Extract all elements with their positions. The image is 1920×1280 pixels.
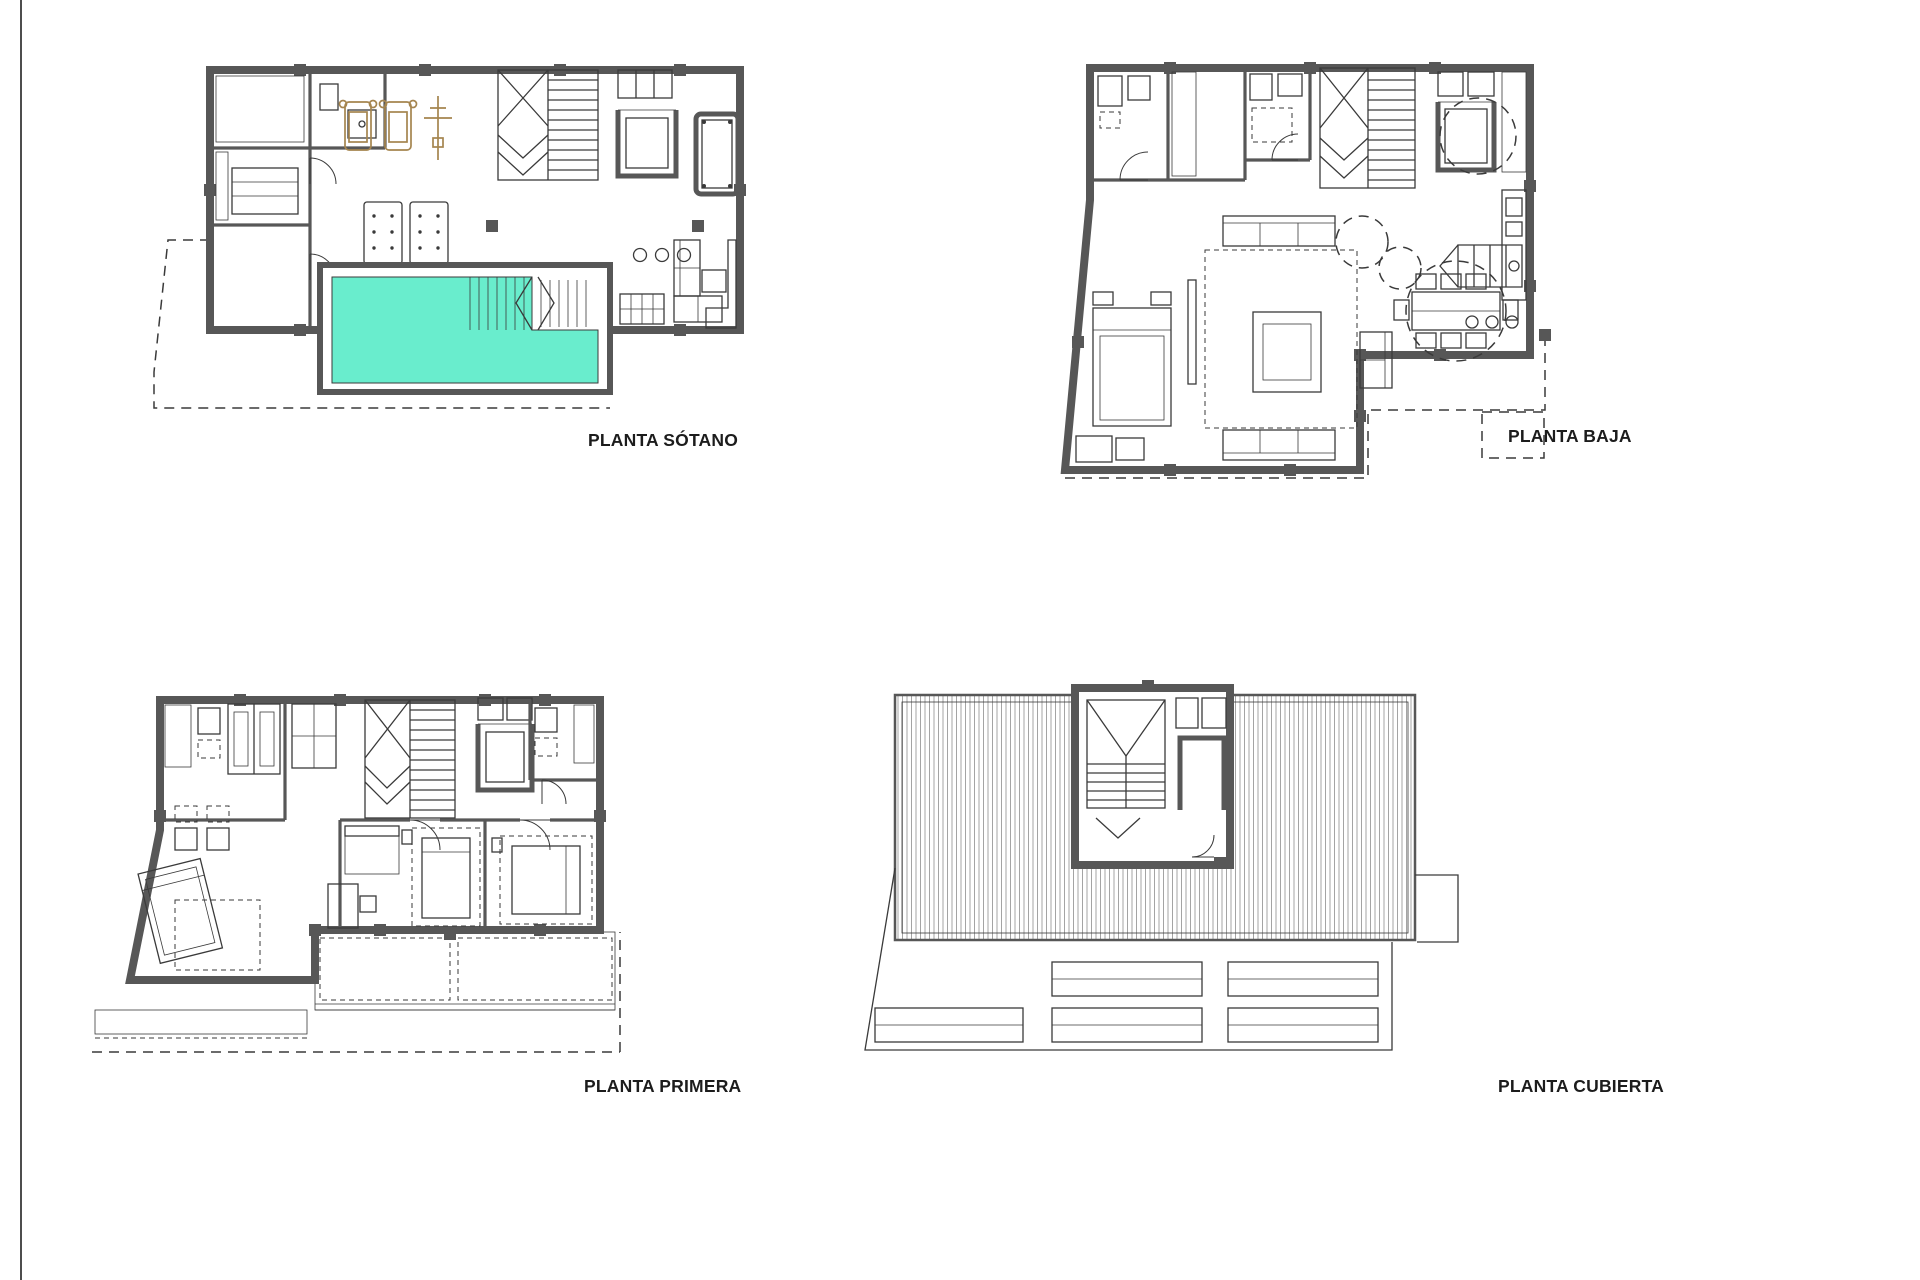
ground-floor-shell bbox=[1065, 62, 1536, 476]
stair-bulkhead bbox=[1075, 680, 1230, 869]
elevator bbox=[618, 110, 676, 176]
swimming-pool bbox=[320, 265, 610, 392]
bar-counter bbox=[634, 240, 737, 328]
closet bbox=[292, 704, 336, 768]
floor-plan-sotano bbox=[140, 40, 820, 470]
staircase bbox=[1320, 68, 1415, 188]
dining-set bbox=[1394, 261, 1518, 361]
bedroom-master bbox=[138, 859, 260, 970]
elevator bbox=[478, 698, 532, 790]
pantry-area bbox=[1440, 72, 1526, 174]
bed bbox=[1076, 292, 1171, 462]
staircase bbox=[365, 700, 455, 818]
panel-planta-cubierta bbox=[860, 660, 1740, 1120]
panel-planta-baja bbox=[1020, 40, 1740, 480]
label-planta-sotano: PLANTA SÓTANO bbox=[588, 430, 738, 451]
lounge-furniture bbox=[620, 240, 726, 324]
kitchen bbox=[1466, 190, 1526, 328]
corner-stair bbox=[1440, 245, 1522, 287]
column bbox=[486, 220, 498, 232]
floor-plan-baja bbox=[1020, 40, 1740, 480]
massage-tables bbox=[364, 202, 448, 264]
sheet-frame-line bbox=[20, 0, 22, 1280]
elevator bbox=[1438, 72, 1494, 170]
label-planta-cubierta: PLANTA CUBIERTA bbox=[1498, 1076, 1664, 1097]
floor-plan-cubierta bbox=[860, 660, 1740, 1120]
pouf-circle bbox=[1379, 247, 1421, 289]
label-planta-baja: PLANTA BAJA bbox=[1508, 426, 1632, 447]
floor-plan-primera bbox=[80, 660, 820, 1120]
bathrooms bbox=[1090, 68, 1310, 180]
label-planta-primera: PLANTA PRIMERA bbox=[584, 1076, 741, 1097]
closet bbox=[618, 70, 672, 98]
bedroom-center bbox=[402, 828, 480, 926]
panel-planta-sotano bbox=[140, 40, 820, 470]
bathroom-right bbox=[530, 700, 600, 804]
bedroom-right bbox=[492, 836, 592, 924]
billiard-table bbox=[696, 114, 738, 194]
bathroom-dressing bbox=[160, 700, 285, 850]
panel-planta-primera bbox=[80, 660, 820, 1120]
column bbox=[692, 220, 704, 232]
first-floor-shell bbox=[130, 694, 606, 980]
pergola-panels bbox=[875, 962, 1378, 1042]
staircase bbox=[498, 70, 598, 180]
gym-equipment bbox=[340, 96, 453, 160]
drawing-sheet: PLANTA SÓTANO PLANTA BAJA PLANTA PRIMERA… bbox=[0, 0, 1920, 1280]
